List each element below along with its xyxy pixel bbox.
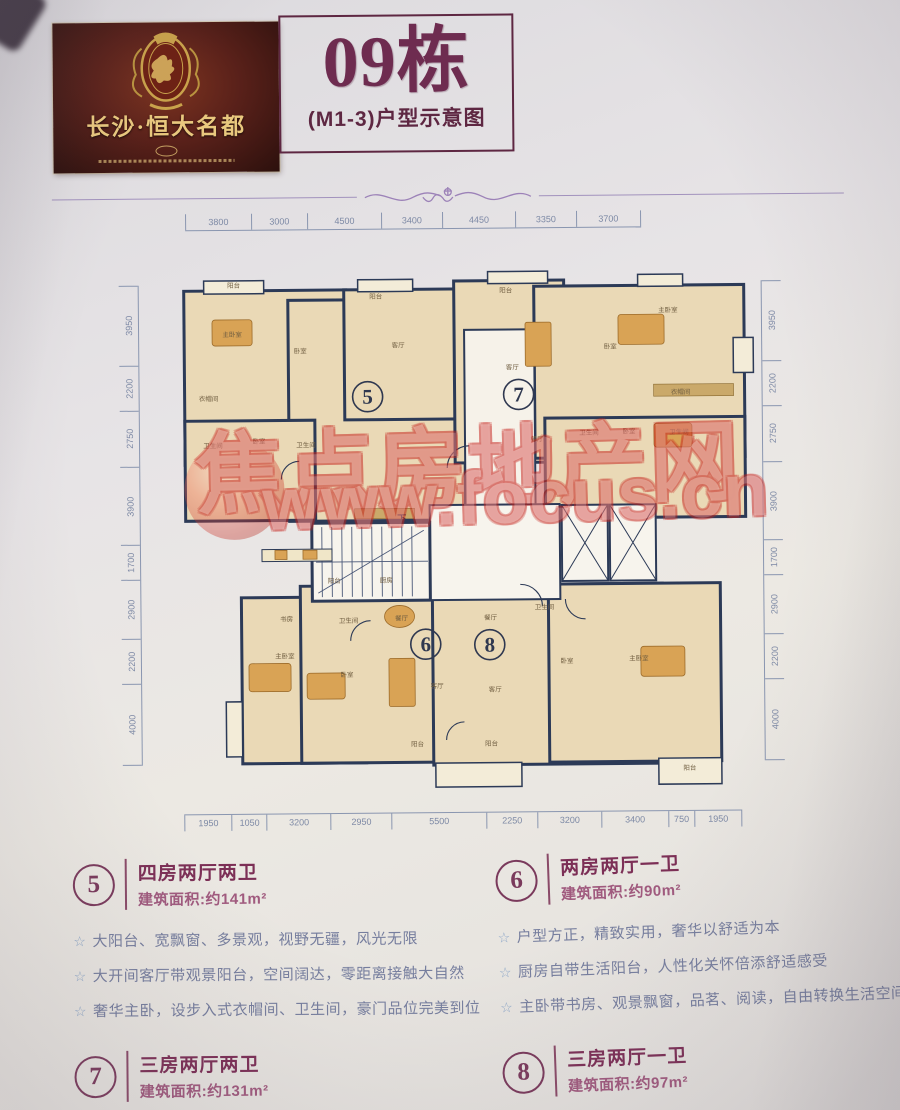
ornament-divider	[52, 180, 844, 213]
unit-8-badge: 8	[502, 1050, 546, 1094]
flourish-icon	[363, 182, 533, 209]
dimension-label: 2900	[121, 581, 141, 640]
developer-logo: 长沙·恒大名都	[52, 21, 279, 173]
unit-7-info: 7 三房两厅两卫 建筑面积:约131m² ☆户型方正，精致实用，奢华以舒适为本☆…	[74, 1048, 487, 1110]
unit-number: 5	[87, 871, 100, 899]
unit-7-badge: 7	[74, 1055, 116, 1097]
dimension-label: 1700	[121, 546, 140, 581]
room-label: 阳台	[485, 739, 498, 748]
building-number: 09栋	[280, 21, 512, 101]
dimension-label: 2200	[119, 367, 138, 412]
room-label: 衣帽间	[671, 387, 691, 396]
room-label: 卫生间	[296, 440, 316, 449]
star-bullet-icon: ☆	[73, 933, 86, 949]
room-label: 主卧室	[658, 305, 678, 314]
dimension-label: 3350	[516, 211, 577, 228]
star-bullet-icon: ☆	[500, 999, 514, 1015]
room-label: 卫生间	[203, 441, 223, 450]
unit-features: ☆客厅、餐厅一脉相承，超然空间开启尊贵生活☆南北通透，布局合理，动静分区，干湿分…	[504, 1098, 900, 1110]
unit-features: ☆大阳台、宽飘窗、多景观，视野无疆，风光无限☆大开间客厅带观景阳台，空间阔达，零…	[73, 921, 486, 1030]
dimension-label: 4000	[765, 679, 785, 760]
room-label: 客厅	[431, 681, 445, 690]
dimension-label: 1050	[232, 815, 267, 831]
unit-number: 7	[89, 1063, 102, 1091]
elevator-shafts	[562, 504, 657, 581]
dimension-label: 2750	[120, 411, 139, 467]
dimension-label: 3000	[252, 213, 308, 229]
room-label: 卫生间	[669, 427, 689, 436]
room-label: 卧室	[294, 346, 308, 355]
dimension-label: 2200	[762, 361, 781, 406]
room-label: 客厅	[489, 685, 503, 694]
room-label: 餐厅	[484, 613, 498, 622]
dimension-label: 3400	[382, 212, 443, 229]
dims-left: 39502200275039001700290022004000	[119, 286, 143, 766]
room-label: 厨房	[380, 576, 393, 585]
unit-area: 建筑面积:约90m²	[561, 879, 682, 904]
room-label: 卧室	[622, 426, 636, 435]
stair-direction-label: 下	[397, 513, 406, 523]
unit-title: 四房两厅两卫	[138, 858, 267, 886]
unit-marker-number: 8	[484, 633, 495, 657]
star-bullet-icon: ☆	[74, 968, 87, 984]
unit-8-info: 8 三房两厅一卫 建筑面积:约97m² ☆客厅、餐厅一脉相承，超然空间开启尊贵生…	[502, 1033, 900, 1110]
dimension-label: 4450	[443, 211, 516, 228]
room-label: 阳台	[227, 281, 240, 290]
dimension-label: 2250	[487, 812, 538, 828]
unit-5-info: 5 四房两厅两卫 建筑面积:约141m² ☆大阳台、宽飘窗、多景观，视野无疆，风…	[73, 856, 486, 1030]
feature-item: ☆客厅、餐厅一脉相承，超然空间开启尊贵生活	[504, 1098, 900, 1110]
dimension-label: 1950	[184, 815, 232, 831]
dims-right: 39502200275039001700290022004000	[761, 280, 785, 760]
legend-right-column: 6 两房两厅一卫 建筑面积:约90m² ☆户型方正，精致实用，奢华以舒适为本☆厨…	[495, 841, 900, 1110]
unit-marker-number: 5	[362, 385, 373, 409]
unit-title: 三房两厅一卫	[567, 1041, 688, 1072]
crest-icon	[105, 28, 226, 115]
room-label: 阳台	[328, 576, 341, 585]
unit-features: ☆户型方正，精致实用，奢华以舒适为本☆厨房自带生活阳台，人性化关怀倍添舒适感受☆…	[497, 906, 900, 1026]
room-label: 卧室	[252, 437, 266, 446]
room-label: 主卧室	[275, 651, 295, 660]
dimension-label: 3200	[538, 812, 602, 829]
room-label: 餐厅	[530, 434, 544, 443]
title-box: 09栋 (M1-3)户型示意图	[278, 13, 514, 153]
unit-area: 建筑面积:约131m²	[140, 1080, 269, 1102]
dimension-label: 1950	[695, 810, 742, 826]
unit-5-badge: 5	[73, 863, 115, 905]
dimension-label: 4000	[122, 685, 142, 766]
unit-area: 建筑面积:约97m²	[568, 1071, 689, 1096]
unit-number: 6	[510, 866, 524, 894]
unit-area: 建筑面积:约141m²	[138, 888, 267, 910]
room-label: 卫生间	[535, 602, 555, 611]
logo-emblem-icon	[155, 145, 177, 156]
room-label: 客厅	[392, 340, 406, 349]
room-label: 书房	[280, 614, 293, 623]
room-label: 主卧室	[629, 653, 649, 662]
room-label: 阳台	[369, 292, 382, 301]
unit-marker-number: 7	[513, 382, 524, 406]
dimension-label: 3400	[602, 811, 669, 828]
legend-left-column: 5 四房两厅两卫 建筑面积:约141m² ☆大阳台、宽飘窗、多景观，视野无疆，风…	[73, 856, 488, 1110]
star-bullet-icon: ☆	[497, 929, 511, 945]
room-label: 卧室	[604, 342, 618, 351]
dims-bottom: 195010503200295055002250320034007501950	[184, 809, 742, 831]
feature-item: ☆大开间客厅带观景阳台，空间阔达，零距离接触大自然	[74, 956, 486, 995]
feature-item: ☆大阳台、宽飘窗、多景观，视野无疆，风光无限	[73, 921, 485, 960]
unit-title: 两房两厅一卫	[560, 849, 681, 880]
room-label: 阳台	[499, 285, 512, 294]
dimension-label: 3900	[763, 462, 783, 541]
dimension-label: 3950	[119, 286, 139, 367]
feature-item: ☆奢华主卧，设步入式衣帽间、卫生间，豪门品位完美到位	[74, 991, 486, 1030]
dimension-label: 1700	[764, 541, 783, 576]
dimension-label: 3950	[762, 280, 782, 361]
floor-plan: 下 阳台主卧室卧室客厅阳台衣帽间卫生间卧室卫生间阳台客厅餐厅卧室主卧室衣帽间卫生…	[127, 212, 782, 828]
unit-number: 8	[517, 1058, 531, 1086]
room-label: 卧室	[340, 670, 354, 679]
brochure-sheet: 长沙·恒大名都 09栋 (M1-3)户型示意图	[0, 0, 900, 1110]
room-label: 餐厅	[395, 613, 409, 622]
room-label: 阳台	[683, 763, 696, 772]
star-bullet-icon: ☆	[74, 1003, 87, 1019]
dimension-label: 3900	[120, 467, 140, 546]
dimension-label: 2950	[332, 814, 393, 831]
building-subtitle: (M1-3)户型示意图	[281, 101, 512, 133]
unit-marker-number: 6	[420, 632, 431, 656]
room-label: 卫生间	[339, 616, 359, 625]
dimension-label: 3800	[185, 214, 252, 231]
dimension-label: 750	[669, 811, 695, 827]
room-label: 卫生间	[579, 428, 599, 437]
dimension-label: 3700	[577, 210, 642, 227]
unit-6-info: 6 两房两厅一卫 建筑面积:约90m² ☆户型方正，精致实用，奢华以舒适为本☆厨…	[495, 841, 900, 1026]
dimension-label: 2900	[764, 575, 784, 634]
unit-title: 三房两厅两卫	[139, 1050, 268, 1078]
room-label: 阳台	[411, 739, 424, 748]
dimension-label: 2200	[765, 634, 784, 679]
room-label: 主卧室	[222, 330, 242, 339]
dimension-label: 3200	[268, 814, 332, 831]
unit-6-badge: 6	[495, 859, 539, 903]
dimension-label: 2750	[763, 406, 782, 462]
logo-caption	[99, 159, 235, 163]
brochure-photo: 长沙·恒大名都 09栋 (M1-3)户型示意图	[0, 0, 900, 1110]
dimension-label: 5500	[392, 813, 487, 830]
dimension-label: 4500	[308, 213, 382, 230]
room-label: 客厅	[506, 362, 520, 371]
room-label: 衣帽间	[199, 394, 219, 403]
room-label: 卧室	[560, 656, 574, 665]
star-bullet-icon: ☆	[499, 964, 513, 980]
dimension-label: 2200	[122, 640, 141, 685]
